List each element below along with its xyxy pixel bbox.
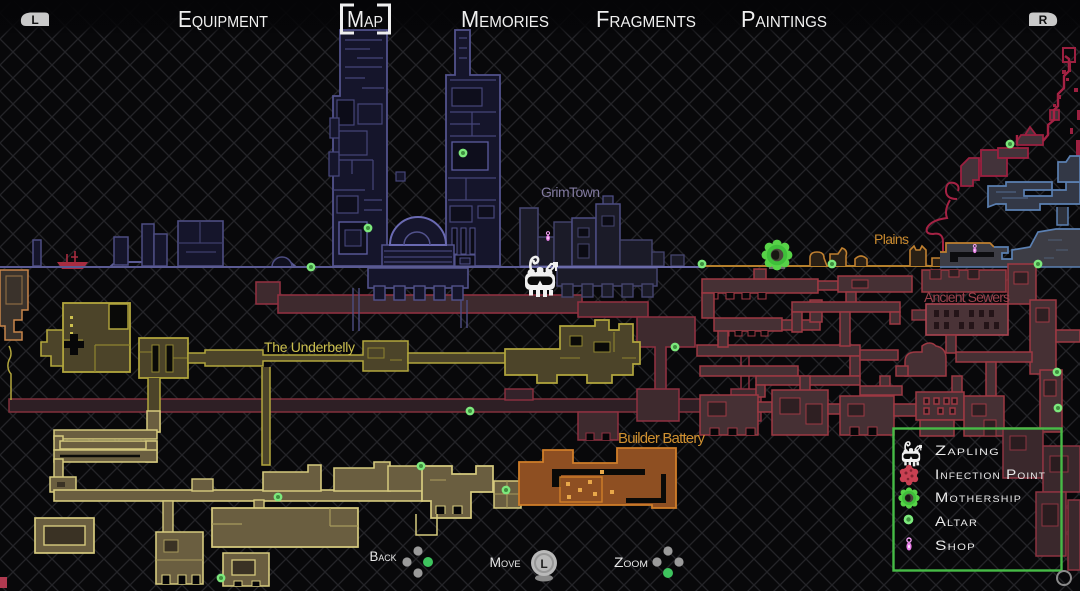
- svg-text:Ancient Sewers: Ancient Sewers: [924, 289, 1010, 305]
- svg-text:L: L: [31, 13, 38, 27]
- svg-text:Back: Back: [370, 549, 397, 564]
- svg-text:GrimTown: GrimTown: [541, 184, 600, 200]
- svg-text:Shop: Shop: [935, 538, 976, 553]
- svg-text:Zapling: Zapling: [935, 443, 1000, 458]
- svg-text:Builder Battery: Builder Battery: [618, 430, 706, 447]
- svg-text:The Underbelly: The Underbelly: [264, 339, 355, 355]
- svg-text:Plains: Plains: [874, 231, 909, 247]
- svg-text:Infection Point: Infection Point: [935, 467, 1046, 482]
- svg-text:Memories: Memories: [461, 6, 549, 32]
- svg-text:Altar: Altar: [935, 514, 978, 529]
- svg-text:Mothership: Mothership: [935, 490, 1022, 505]
- svg-text:Paintings: Paintings: [741, 6, 827, 32]
- svg-text:Map: Map: [347, 6, 383, 32]
- svg-text:R: R: [1039, 13, 1048, 27]
- svg-text:Move: Move: [490, 555, 521, 570]
- svg-text:Zoom: Zoom: [614, 555, 648, 570]
- svg-text:L: L: [540, 557, 547, 571]
- svg-text:Equipment: Equipment: [178, 6, 268, 32]
- svg-text:Fragments: Fragments: [596, 6, 696, 32]
